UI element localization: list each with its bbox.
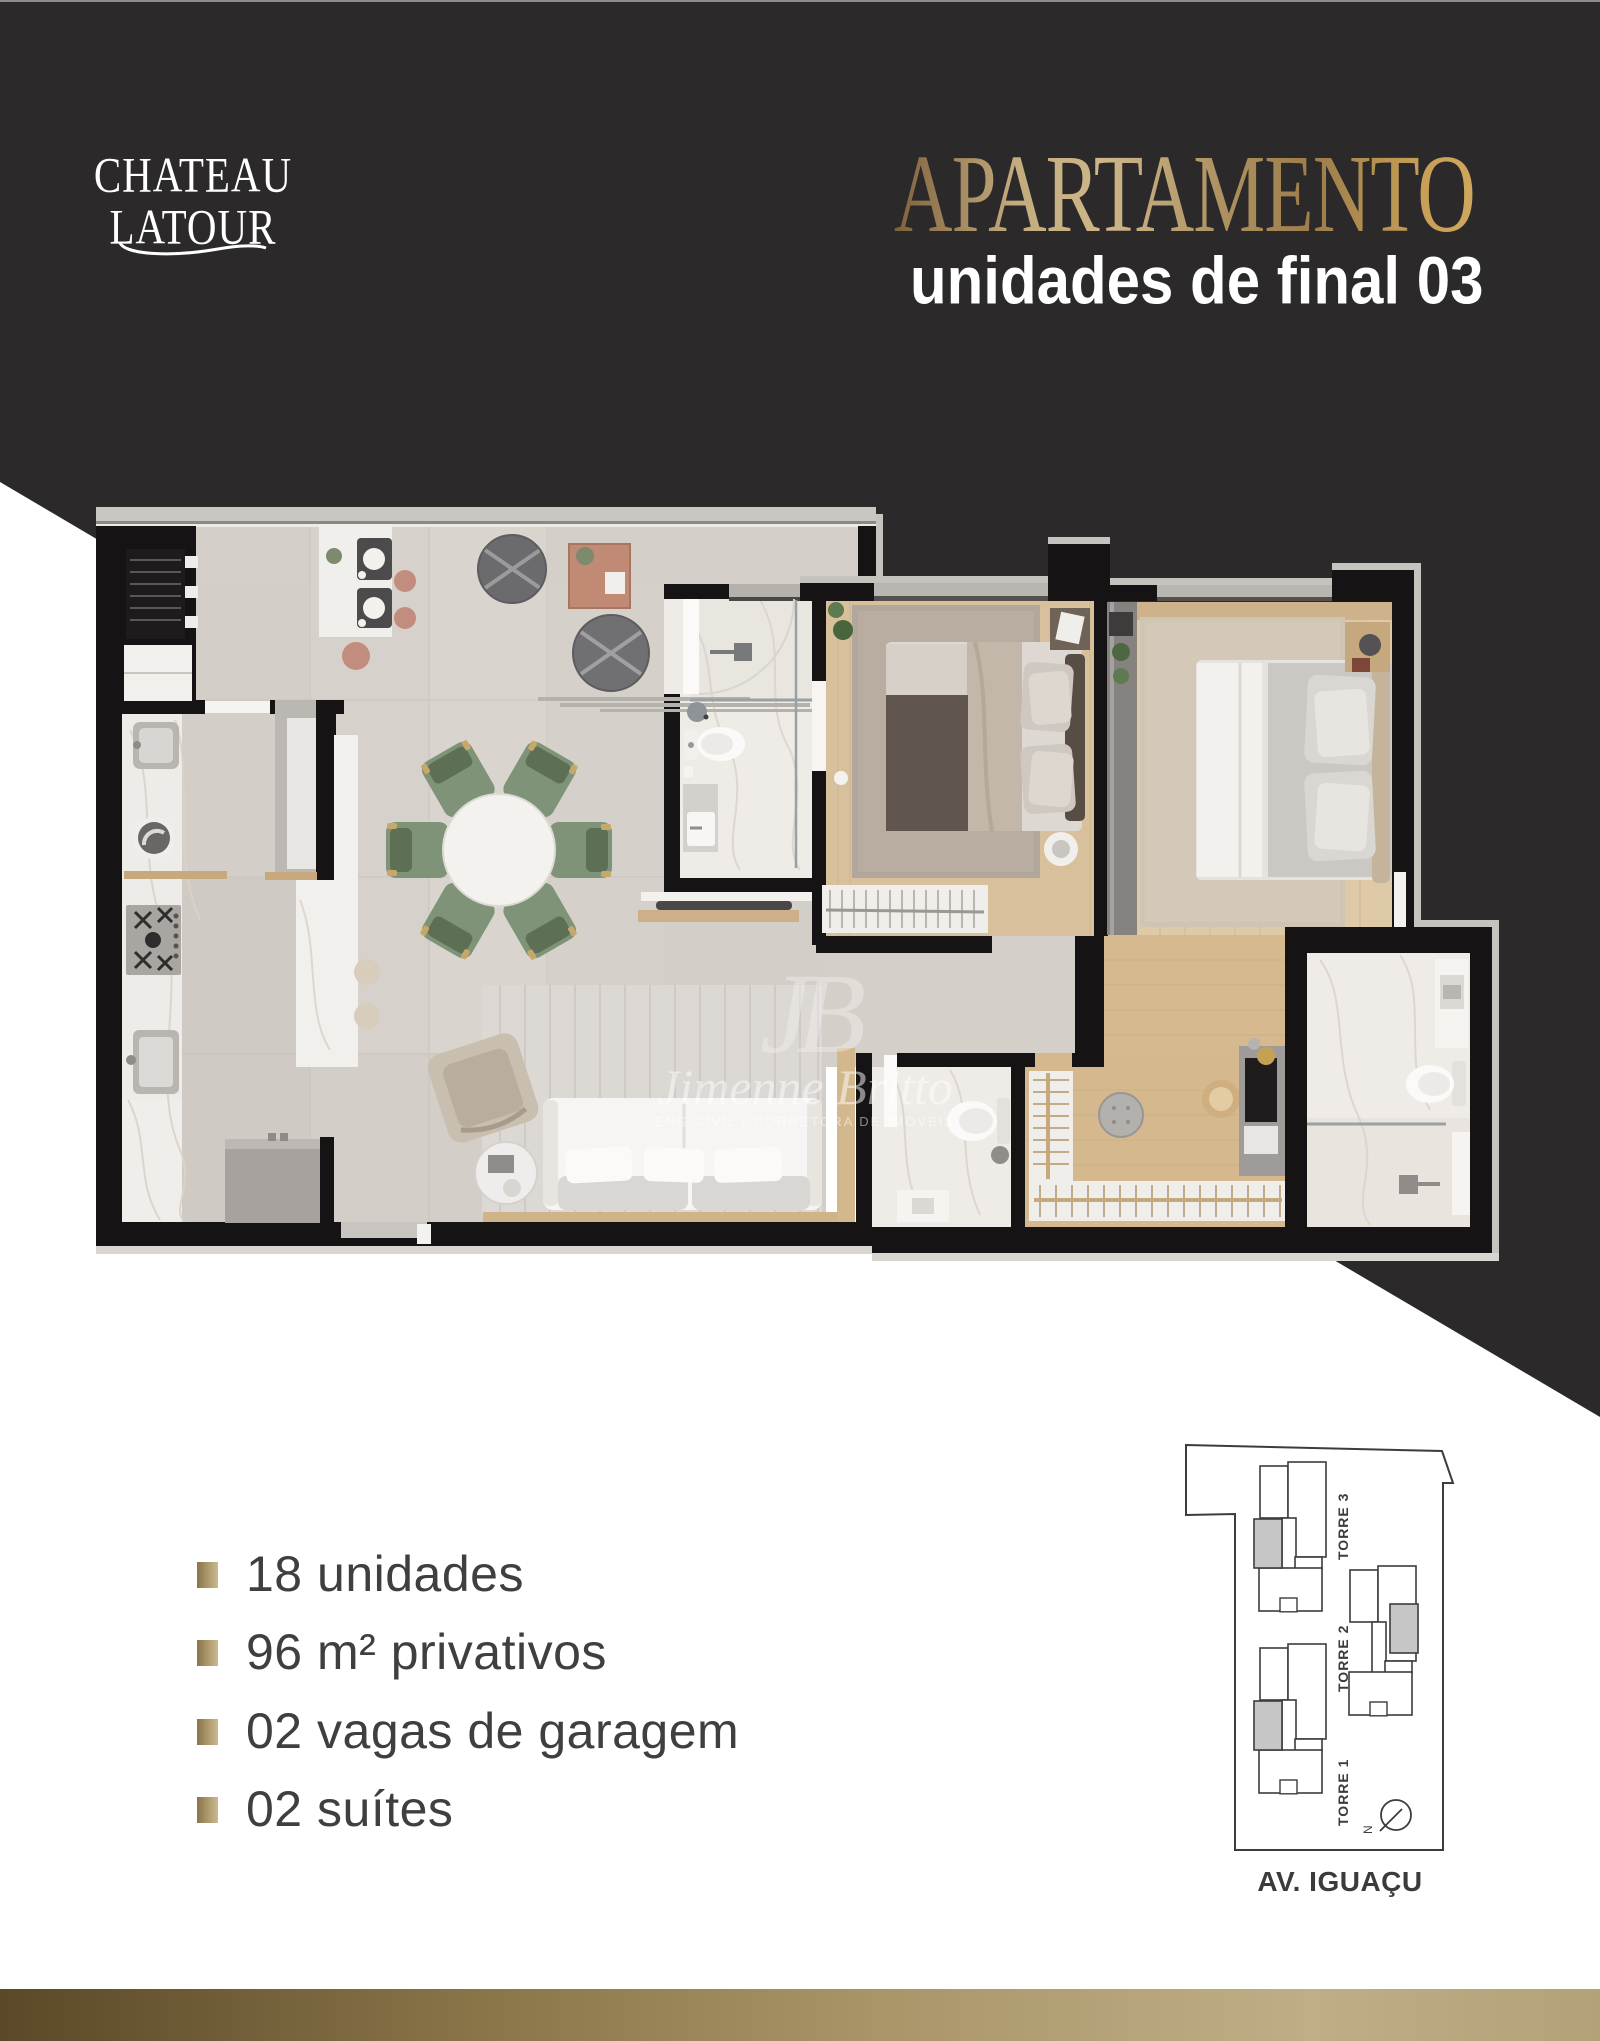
svg-text:TORRE 3: TORRE 3 <box>1335 1493 1351 1560</box>
svg-text:TORRE 1: TORRE 1 <box>1335 1759 1351 1826</box>
svg-text:N: N <box>1361 1825 1375 1834</box>
svg-text:TORRE 2: TORRE 2 <box>1335 1625 1351 1692</box>
svg-text:Jimenne Britto: Jimenne Britto <box>657 1059 953 1115</box>
svg-text:JB: JB <box>760 950 865 1077</box>
svg-text:ENG.CIVIL / CORRETORA DE IMOVE: ENG.CIVIL / CORRETORA DE IMOVEIS <box>655 1114 955 1129</box>
